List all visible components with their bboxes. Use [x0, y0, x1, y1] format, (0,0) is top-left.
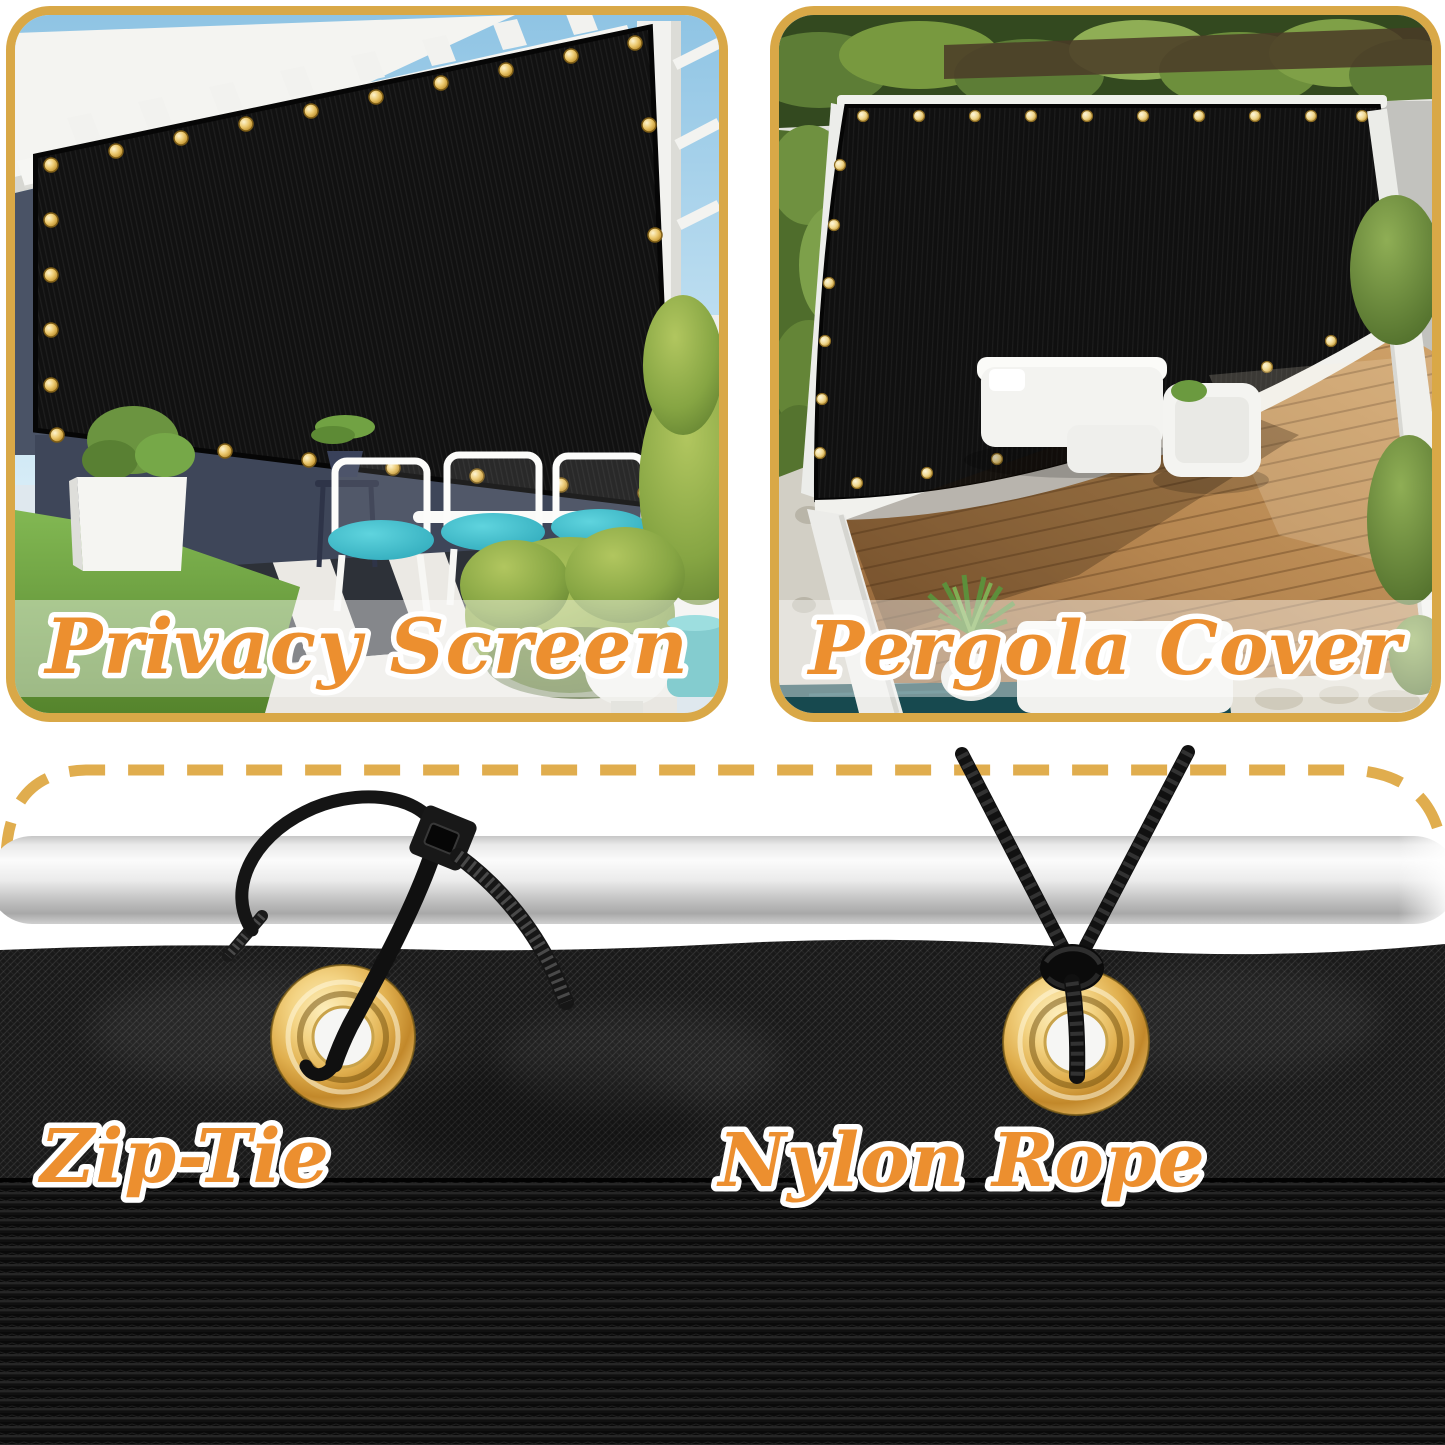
pergola-cover-photo: Pergola Cover: [779, 15, 1432, 713]
privacy-screen-caption: Privacy Screen: [43, 602, 689, 691]
installation-photo: Zip-Tie Nylon Rope: [0, 730, 1445, 1445]
pergola-cover-panel: Pergola Cover: [770, 6, 1441, 722]
nylon-rope-caption: Nylon Rope: [716, 1118, 1205, 1204]
product-feature-image: Privacy Screen: [0, 0, 1445, 1445]
pergola-cover-caption: Pergola Cover: [807, 606, 1406, 692]
privacy-screen-photo: Privacy Screen: [15, 15, 719, 713]
zip-tie-caption: Zip-Tie: [37, 1114, 330, 1200]
mounting-pole: [0, 830, 1445, 930]
installation-panel: Zip-Tie Nylon Rope: [0, 730, 1445, 1445]
armchair: [1153, 380, 1269, 494]
outdoor-sofa: [964, 357, 1194, 478]
privacy-screen-panel: Privacy Screen: [6, 6, 728, 722]
